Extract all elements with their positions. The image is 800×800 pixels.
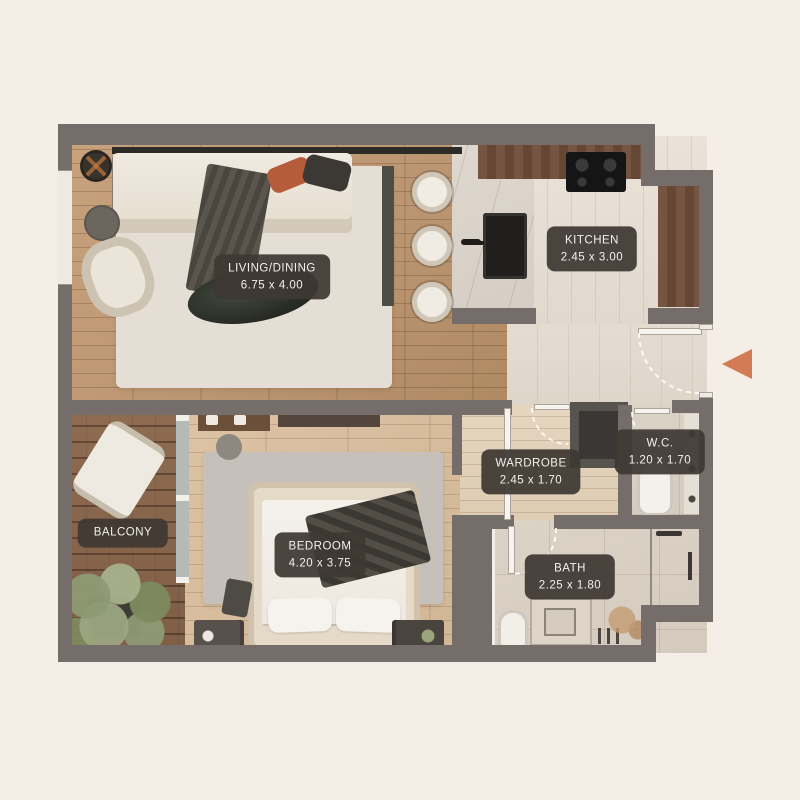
bed-pillow-left <box>267 597 332 633</box>
room-label-wardrobe: WARDROBE 2.45 x 1.70 <box>481 449 580 494</box>
wall-right-lower <box>641 605 656 662</box>
wall-top <box>58 124 655 145</box>
room-name: BEDROOM <box>289 538 352 555</box>
wall-bath-top-right <box>554 515 707 529</box>
wc-door-leaf <box>634 408 670 414</box>
bath-sink <box>544 608 576 636</box>
room-label-kitchen: KITCHEN 2.45 x 3.00 <box>547 226 637 271</box>
room-dims: 2.25 x 1.80 <box>539 577 601 594</box>
dining-chair-2 <box>412 226 452 266</box>
desk-items <box>206 415 218 425</box>
room-name: LIVING/DINING <box>228 260 316 277</box>
room-name: W.C. <box>647 435 674 452</box>
wall-right-above-entry <box>699 170 713 330</box>
room-name: BATH <box>554 560 586 577</box>
room-label-bedroom: BEDROOM 4.20 x 3.75 <box>275 532 366 577</box>
wall-bedroom-wardrobe <box>452 405 462 475</box>
balcony-plant <box>58 556 178 656</box>
floorplan-page: { "page": { "background": "#F5EEE6" }, "… <box>0 0 800 800</box>
room-label-bath: BATH 2.25 x 1.80 <box>525 554 615 599</box>
room-label-living: LIVING/DINING 6.75 x 4.00 <box>214 254 330 299</box>
wall-step-bottom-right <box>648 605 713 622</box>
entry-door-leaf <box>638 328 702 335</box>
room-dims: 6.75 x 4.00 <box>241 277 303 294</box>
dresser <box>278 413 380 427</box>
shower-fixture <box>656 531 682 536</box>
wall-kitchen-hall-right <box>648 308 706 324</box>
room-dims: 2.45 x 3.00 <box>561 249 623 266</box>
glass-mullion <box>176 415 189 421</box>
dining-chair-3 <box>412 282 452 322</box>
entrance-arrow-icon <box>722 349 752 379</box>
shower-head <box>688 552 692 580</box>
glass-mullion <box>176 495 189 501</box>
room-dims: 4.20 x 3.75 <box>289 555 351 572</box>
wall-bottom <box>58 645 656 662</box>
wall-bedroom-bath-band <box>452 515 492 653</box>
shower-glass-partition <box>650 525 652 611</box>
kitchen-faucet <box>466 241 484 245</box>
wall-kitchen-hall-left <box>452 308 536 324</box>
balcony-glass-divider <box>176 415 189 583</box>
washer-closet-door <box>579 411 619 459</box>
room-label-wc: W.C. 1.20 x 1.70 <box>615 429 705 474</box>
living-window <box>58 170 72 285</box>
cooktop <box>566 152 626 192</box>
entry-door-jamb-bottom <box>699 392 713 398</box>
corridor-door-leaf <box>534 404 570 410</box>
glass-mullion <box>176 577 189 583</box>
wall-right-below-entry <box>699 395 713 620</box>
bath-door-leaf <box>508 526 515 574</box>
wall-living-bedroom <box>58 400 512 415</box>
round-coffee-side-table <box>84 205 120 241</box>
room-dims: 2.45 x 1.70 <box>500 472 562 489</box>
room-label-balcony: BALCONY <box>78 519 168 548</box>
kitchen-counter-right <box>658 182 700 307</box>
wall-wc-top-stub <box>672 400 707 413</box>
room-name: WARDROBE <box>495 455 566 472</box>
room-name: BALCONY <box>94 525 152 542</box>
room-name: KITCHEN <box>565 232 619 249</box>
rug-runner-dark <box>382 166 394 306</box>
dining-chair-1 <box>412 172 452 212</box>
bed-pillow-right <box>335 597 400 633</box>
entry-door-jamb-top <box>699 324 713 330</box>
desk-chair <box>216 434 242 460</box>
side-table <box>80 150 112 182</box>
kitchen-sink <box>483 213 527 279</box>
room-dims: 1.20 x 1.70 <box>629 452 691 469</box>
